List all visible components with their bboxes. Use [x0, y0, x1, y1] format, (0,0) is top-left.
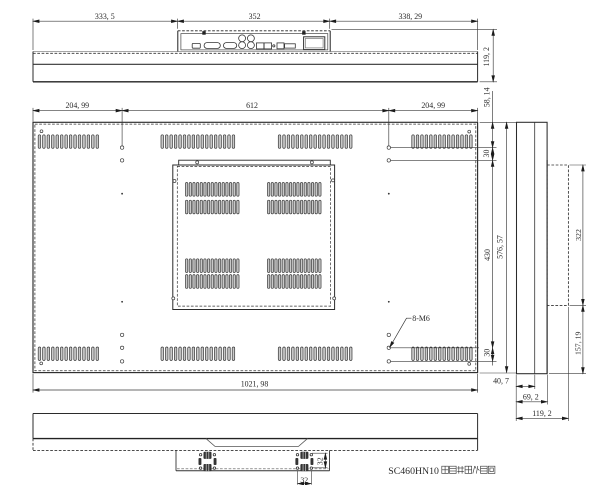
svg-text:333, 5: 333, 5: [95, 12, 115, 21]
svg-text:32: 32: [300, 475, 308, 484]
svg-text:119, 2: 119, 2: [532, 409, 551, 418]
svg-text:8-M6: 8-M6: [412, 314, 430, 323]
svg-text:32: 32: [316, 457, 325, 465]
svg-text:322: 322: [574, 229, 583, 241]
svg-text:352: 352: [249, 12, 261, 21]
svg-text:338, 29: 338, 29: [398, 12, 422, 21]
svg-text:204, 99: 204, 99: [421, 101, 445, 110]
svg-text:612: 612: [246, 101, 258, 110]
svg-text:30: 30: [482, 150, 491, 158]
svg-text:30: 30: [482, 349, 491, 357]
svg-text:430: 430: [483, 249, 492, 261]
svg-text:1021, 98: 1021, 98: [241, 380, 269, 389]
svg-text:119, 2: 119, 2: [482, 47, 491, 66]
svg-text:SC460HN10: SC460HN10: [388, 466, 439, 477]
svg-text:576, 57: 576, 57: [496, 235, 505, 259]
svg-text:58, 14: 58, 14: [482, 87, 491, 107]
svg-text:204, 99: 204, 99: [65, 101, 89, 110]
svg-text:40, 7: 40, 7: [493, 376, 509, 385]
svg-text:69, 2: 69, 2: [523, 392, 539, 401]
svg-text:157, 19: 157, 19: [573, 332, 582, 355]
